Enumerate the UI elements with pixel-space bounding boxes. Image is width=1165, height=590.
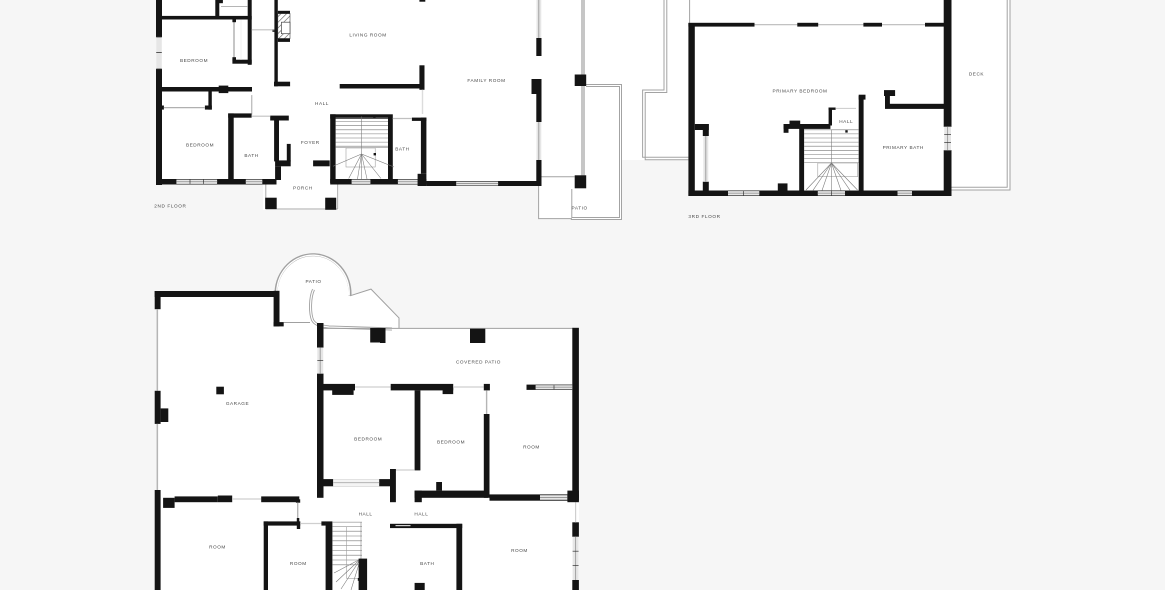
svg-text:COVERED PATIO: COVERED PATIO (456, 360, 501, 365)
svg-text:2ND FLOOR: 2ND FLOOR (154, 204, 186, 209)
svg-text:PORCH: PORCH (293, 185, 313, 190)
svg-text:LIVING ROOM: LIVING ROOM (349, 33, 386, 38)
svg-text:ROOM: ROOM (511, 548, 528, 553)
svg-text:ROOM: ROOM (209, 545, 226, 550)
svg-text:PRIMARY BATH: PRIMARY BATH (883, 145, 924, 150)
svg-text:3RD FLOOR: 3RD FLOOR (688, 214, 720, 219)
svg-text:BEDROOM: BEDROOM (180, 58, 208, 63)
svg-text:BATH: BATH (395, 147, 409, 152)
svg-text:BATH: BATH (420, 561, 434, 566)
svg-text:HALL: HALL (359, 511, 373, 516)
svg-text:PATIO: PATIO (572, 206, 588, 211)
svg-text:BEDROOM: BEDROOM (354, 436, 382, 441)
svg-text:PATIO: PATIO (305, 279, 321, 284)
svg-text:DECK: DECK (969, 72, 985, 77)
svg-text:BATH: BATH (244, 153, 258, 158)
svg-text:FOYER: FOYER (301, 140, 320, 145)
svg-text:GARAGE: GARAGE (226, 401, 249, 406)
svg-text:HALL: HALL (414, 511, 428, 516)
svg-text:HALL: HALL (839, 119, 853, 124)
svg-text:ROOM: ROOM (523, 445, 540, 450)
svg-text:PRIMARY BEDROOM: PRIMARY BEDROOM (773, 89, 828, 94)
svg-text:ROOM: ROOM (290, 561, 307, 566)
svg-text:FAMILY ROOM: FAMILY ROOM (467, 78, 505, 83)
svg-text:HALL: HALL (315, 101, 329, 106)
svg-text:BEDROOM: BEDROOM (186, 142, 214, 147)
svg-text:BEDROOM: BEDROOM (437, 439, 465, 444)
